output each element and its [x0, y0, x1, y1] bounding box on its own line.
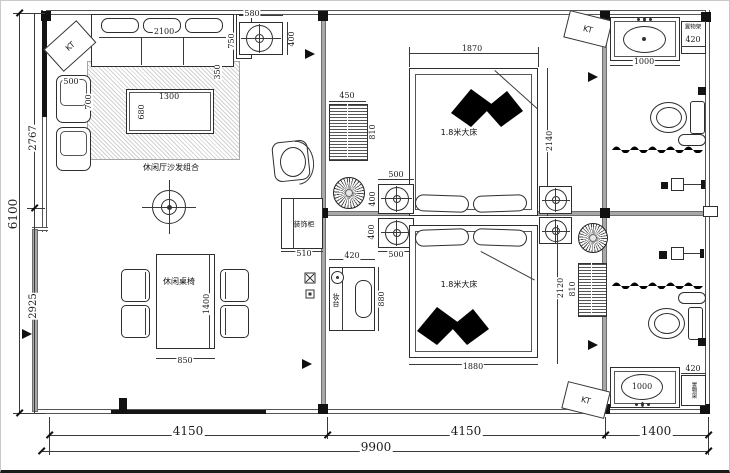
speaker-crosshair	[241, 38, 281, 39]
entry-marker-icon	[22, 329, 32, 339]
dim-sofa-width: 2100	[153, 28, 175, 36]
living-area-label: 休闲厅沙发组合	[143, 164, 199, 172]
floor-drain-icon	[698, 338, 706, 346]
dim-ext	[27, 208, 45, 209]
ceiling-light-center	[167, 205, 172, 210]
dim-dining-depth: 1400	[203, 293, 211, 315]
sink-drain	[642, 37, 646, 41]
dim-left-total: 6100	[7, 198, 19, 231]
dining-label: 休闲桌椅	[163, 278, 195, 286]
dim-bed1-depth: 2140	[546, 130, 554, 152]
dressing-table-label: 妆台	[332, 293, 339, 307]
column	[600, 208, 610, 218]
speaker-crosshair	[542, 200, 570, 201]
dim-dresser-depth: 880	[378, 290, 386, 307]
speaker-icon	[393, 195, 401, 203]
dim-dining-width: 850	[176, 357, 193, 365]
shower-control-icon	[661, 182, 668, 189]
sofa-seat-line	[99, 37, 226, 38]
shower-control-icon	[659, 251, 667, 259]
dim-sofa-side: 350	[214, 63, 222, 80]
wall-opening-mark	[703, 206, 718, 217]
dim-shelf-depth: 810	[369, 123, 377, 140]
kt-label: KT	[582, 23, 593, 34]
dim-shelf2-depth: 810	[569, 280, 577, 297]
sofa-cushion	[185, 18, 223, 33]
toilet-tank	[688, 307, 703, 340]
shower-curtain	[610, 279, 706, 289]
cabinet-label: 装饰柜	[294, 222, 315, 229]
toilet-tank	[690, 101, 705, 134]
shower-head-icon	[701, 180, 705, 189]
shower-head-icon	[700, 249, 704, 258]
dim-coffee-table-depth: 680	[138, 103, 146, 120]
faucet-icon	[647, 403, 650, 406]
dim-left-bottom: 2925	[29, 292, 39, 319]
speaker-crosshair	[555, 219, 556, 243]
speaker-crosshair	[555, 188, 556, 212]
dim-speaker-w-bot: 500	[387, 251, 404, 259]
faucet-icon	[643, 17, 646, 22]
outlet-icon	[305, 289, 315, 299]
dim-bottom-right: 1400	[640, 425, 673, 437]
bed-2-label: 1.8米大床	[441, 281, 478, 289]
armchair-seat	[60, 131, 87, 156]
dressing-stool	[355, 280, 372, 318]
bed-2-head-pillow	[415, 228, 470, 247]
door-marker-icon	[302, 359, 312, 369]
dim-left-top: 2767	[29, 124, 39, 151]
shower-curtain	[610, 143, 706, 153]
dim-bottom-total: 9900	[360, 441, 393, 453]
door-marker-icon	[588, 72, 598, 82]
dim-bed1-width: 1870	[461, 45, 483, 53]
wardrobe-shelf	[578, 263, 607, 317]
bed-1-label: 1.8米大床	[441, 129, 478, 137]
exhaust-fan-icon	[578, 223, 608, 253]
column	[119, 398, 127, 411]
dim-shelf-width: 450	[338, 92, 355, 100]
dim-bed2-depth: 2120	[557, 277, 565, 299]
kt-label: KT	[63, 39, 76, 52]
dim-sofa-depth: 750	[228, 32, 236, 49]
bed-1-head-pillow	[473, 194, 528, 213]
dim-line	[409, 53, 538, 54]
dim-line-left-sub	[34, 13, 35, 413]
dining-chair-back	[225, 272, 226, 299]
shelf-divider	[347, 104, 348, 159]
toilet-bowl-inner	[656, 107, 682, 128]
sofa-cushion	[101, 18, 139, 33]
shelf-divider	[591, 263, 592, 315]
wall-left-filled-segment	[42, 13, 47, 117]
speaker-crosshair	[542, 231, 570, 232]
dim-speaker-w-top: 500	[387, 171, 404, 179]
dim-ext	[538, 47, 539, 67]
outlet-icon	[304, 272, 316, 284]
dim-line	[681, 46, 706, 47]
shower-valve-icon	[671, 247, 684, 260]
dim-line	[329, 101, 366, 102]
dim-rack-top: 420	[684, 36, 701, 44]
dining-chair-back	[145, 272, 146, 299]
column	[318, 404, 328, 414]
wall-left-lower	[32, 229, 38, 412]
shower-valve-icon	[671, 178, 684, 191]
door-marker-icon	[588, 340, 598, 350]
dim-coffee-table-width: 1300	[158, 93, 180, 101]
sofa-divider	[141, 37, 142, 65]
mirror-lamp-dot	[336, 276, 339, 279]
dim-armchair-depth: 700	[85, 93, 93, 110]
speaker-crosshair	[259, 24, 260, 53]
kt-label: KT	[580, 394, 591, 405]
speaker-crosshair	[396, 220, 397, 246]
dim-armchair-width: 500	[62, 78, 79, 86]
faucet-icon	[649, 18, 652, 21]
dim-ext	[409, 47, 410, 67]
storage-rack-label: 置物架	[685, 25, 702, 31]
dim-speaker-d-bot: 400	[368, 223, 376, 240]
dim-line	[378, 179, 414, 180]
bath-mat	[678, 292, 706, 304]
faucet-icon	[635, 403, 638, 406]
bed-1-pillows	[447, 85, 527, 131]
speaker-icon	[393, 229, 401, 237]
sofa-divider	[183, 37, 184, 65]
dim-bed2-width: 1880	[462, 363, 484, 371]
dim-speaker-width: 580	[243, 10, 260, 18]
dim-rack-bottom: 420	[684, 365, 701, 373]
dim-vanity-top: 1000	[633, 58, 655, 66]
bed-1-head-pillow	[415, 194, 470, 213]
wardrobe-shelf	[329, 104, 368, 161]
dim-dresser-width: 420	[343, 252, 360, 260]
dim-line	[681, 373, 706, 374]
dim-speaker-height: 400	[288, 30, 296, 47]
speaker-crosshair	[396, 186, 397, 212]
bed-2-pillows	[413, 303, 493, 349]
dim-cabinet-width: 510	[295, 250, 312, 258]
storage-rack-label: 置物架	[690, 382, 696, 399]
column	[318, 11, 328, 21]
door-marker-icon	[305, 49, 315, 59]
faucet-icon	[641, 402, 644, 407]
dim-line-bottom-1	[49, 435, 708, 436]
dim-bottom-mid: 4150	[450, 425, 483, 437]
bed-2-head-pillow	[473, 228, 528, 247]
wall-bottom-filled-segment	[111, 410, 266, 414]
desk-chair-back	[295, 139, 317, 185]
floor-drain-icon	[698, 87, 706, 95]
dining-chair-back	[145, 308, 146, 335]
dining-chair-back	[225, 308, 226, 335]
exhaust-fan-icon	[333, 177, 365, 209]
dim-speaker-d-top: 400	[369, 190, 377, 207]
floor-plan: 2100 750 350 580 400 KT 500 700 1300 680…	[0, 0, 730, 473]
dim-bottom-left: 4150	[172, 425, 205, 437]
faucet-icon	[637, 18, 640, 21]
dim-vanity-bottom: 1000	[631, 383, 653, 391]
toilet-bowl-inner	[654, 313, 680, 334]
